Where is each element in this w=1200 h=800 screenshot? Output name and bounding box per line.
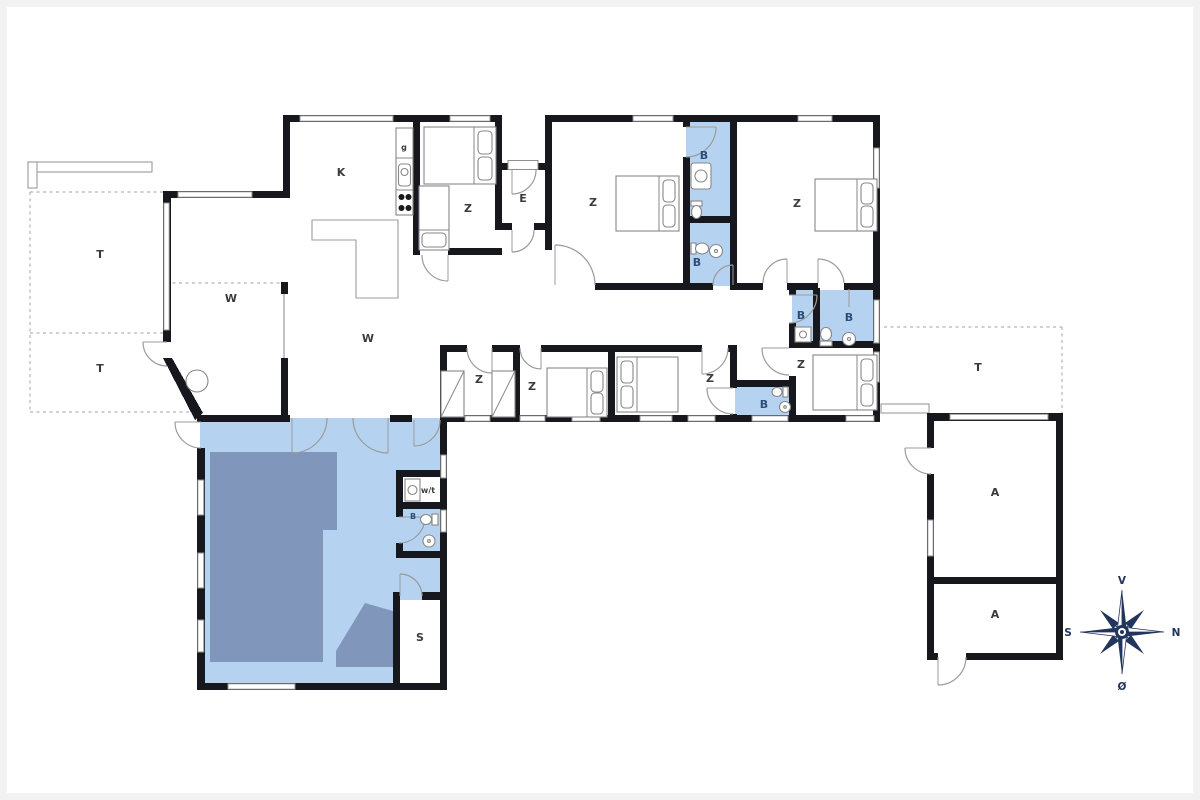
bed-double — [424, 127, 496, 184]
door-arc-entry-hall — [512, 230, 534, 252]
window — [752, 416, 788, 421]
compass-letter-left: S — [1064, 627, 1072, 639]
wall-segment — [422, 592, 447, 600]
label-bathroom-4: B — [845, 311, 853, 324]
window — [928, 520, 933, 556]
pergola-return — [28, 162, 37, 188]
label-bathroom-5: B — [760, 398, 768, 411]
window — [441, 510, 446, 532]
wall-segment — [495, 223, 512, 230]
wall-segment — [683, 157, 690, 290]
wall-segment — [844, 283, 880, 290]
label-bedroom-4: Z — [797, 358, 805, 371]
compass-letter-right: N — [1172, 627, 1181, 639]
label-bedroom-2: Z — [589, 196, 597, 209]
floorplan-page: T T K g Z E Z Z W W Z Z Z Z T A A w/t S … — [0, 0, 1200, 800]
window — [198, 480, 204, 515]
label-bedroom-6: Z — [528, 380, 536, 393]
wall-segment — [683, 118, 690, 127]
wall-segment — [730, 115, 737, 290]
window — [465, 416, 490, 421]
wall-segment — [197, 415, 290, 422]
window — [198, 553, 204, 588]
bed-double — [813, 355, 877, 410]
wall-segment — [545, 115, 552, 250]
wall-post — [281, 282, 288, 294]
label-kitchen: K — [337, 166, 346, 179]
washer — [405, 479, 420, 501]
door-arc-bedroom-5 — [467, 348, 492, 373]
wall-segment — [448, 248, 502, 255]
label-pantry: g — [401, 143, 407, 152]
wall-segment — [608, 345, 615, 420]
window — [950, 414, 1048, 419]
wall-segment — [737, 380, 796, 387]
window — [441, 455, 446, 478]
kitchen-counter — [396, 128, 413, 215]
wall-segment — [728, 345, 737, 352]
door-arc-living-terrace — [143, 342, 167, 366]
window — [164, 203, 169, 330]
window — [633, 116, 673, 121]
label-bedroom-3: Z — [793, 197, 801, 210]
bathroom-3-fixtures — [795, 327, 811, 342]
wall-segment — [927, 653, 938, 660]
terrace-left-dashes — [30, 192, 197, 412]
wall-segment — [396, 470, 447, 477]
wall-segment — [737, 283, 763, 290]
compass-letter-up: V — [1118, 575, 1127, 587]
label-living-main: W — [362, 332, 374, 345]
entry-threshold — [508, 161, 538, 170]
kitchen-peninsula — [312, 220, 398, 298]
wall-segment — [396, 502, 447, 509]
label-bedroom-7: Z — [706, 372, 714, 385]
wall-segment — [615, 345, 702, 352]
pergola — [28, 162, 152, 172]
label-bedroom-1: Z — [464, 202, 472, 215]
door-arc-bedroom-1 — [422, 255, 448, 281]
wall-segment — [281, 358, 288, 418]
window — [198, 620, 204, 652]
label-annex-lower: A — [991, 608, 1000, 621]
compass-rose: V N S Ø — [1064, 575, 1180, 693]
door-arc-bedroom-2 — [555, 245, 595, 285]
bed-double — [815, 179, 877, 231]
wall-segment — [390, 415, 412, 422]
window — [178, 192, 252, 197]
door-arc-entry-front — [512, 170, 536, 194]
window — [640, 416, 672, 421]
wall-segment — [789, 288, 796, 295]
label-terrace-upper-left: T — [96, 248, 104, 261]
door-arc-bedroom-7 — [702, 348, 728, 374]
wall-segment — [1056, 413, 1063, 660]
label-entry: E — [519, 192, 527, 205]
floorplan-svg: T T K g Z E Z Z W W Z Z Z Z T A A w/t S … — [0, 0, 1200, 800]
wood-stove — [186, 370, 208, 392]
label-terrace-lower-left: T — [96, 362, 104, 375]
bed-double — [547, 368, 607, 417]
bunk-bed — [492, 371, 515, 417]
label-bathroom-pool: B — [410, 512, 416, 521]
label-bathroom-2: B — [693, 256, 701, 269]
wall-segment — [440, 345, 467, 352]
label-bedroom-5: Z — [475, 373, 483, 386]
wall-segment — [730, 414, 737, 422]
window — [300, 116, 393, 121]
door-arc-bathroom-5 — [707, 388, 733, 414]
label-sauna: S — [416, 631, 424, 644]
terrace-east-dashes — [884, 327, 1062, 413]
label-annex-upper: A — [991, 486, 1000, 499]
annex-walkway — [881, 404, 929, 413]
bed-double — [617, 357, 678, 412]
bunk-bed — [441, 371, 464, 417]
wall-segment — [396, 470, 403, 517]
wall-segment — [393, 592, 400, 685]
door-arc-bedroom-4 — [762, 348, 789, 375]
window — [688, 416, 715, 421]
swimming-pool — [210, 452, 337, 662]
wall-segment — [396, 551, 447, 558]
window — [228, 684, 295, 689]
wall-segment — [283, 115, 290, 198]
bed-single — [419, 186, 449, 250]
label-bathroom-3: B — [797, 309, 805, 322]
window — [520, 416, 545, 421]
label-bathroom-1: B — [700, 149, 708, 162]
door-arc-pool-terrace — [175, 422, 201, 448]
label-terrace-east: T — [974, 361, 982, 374]
wall-segment — [595, 283, 683, 290]
wall-segment — [927, 577, 1063, 584]
wall-segment — [683, 283, 713, 290]
wall-segment — [197, 415, 205, 422]
door-arc-bathroom-4 — [818, 259, 844, 283]
wall-segment — [683, 216, 737, 223]
window — [874, 300, 879, 343]
window — [846, 416, 874, 421]
door-arc-annex-side — [905, 448, 931, 474]
wall-segment — [966, 653, 1063, 660]
bed-double — [616, 176, 679, 231]
wall-segment — [927, 474, 934, 660]
compass-letter-down: Ø — [1118, 681, 1127, 693]
door-arc-bedroom-6 — [520, 348, 541, 369]
wall-segment — [733, 283, 737, 290]
label-living-west: W — [225, 292, 237, 305]
label-utility: w/t — [421, 486, 435, 495]
window — [798, 116, 832, 121]
window — [450, 116, 490, 121]
wall-segment — [927, 413, 934, 448]
wall-segment — [396, 543, 403, 558]
door-arc-annex-south — [938, 657, 966, 685]
wall-segment — [541, 345, 608, 352]
door-arc-bedroom-3 — [763, 259, 787, 283]
